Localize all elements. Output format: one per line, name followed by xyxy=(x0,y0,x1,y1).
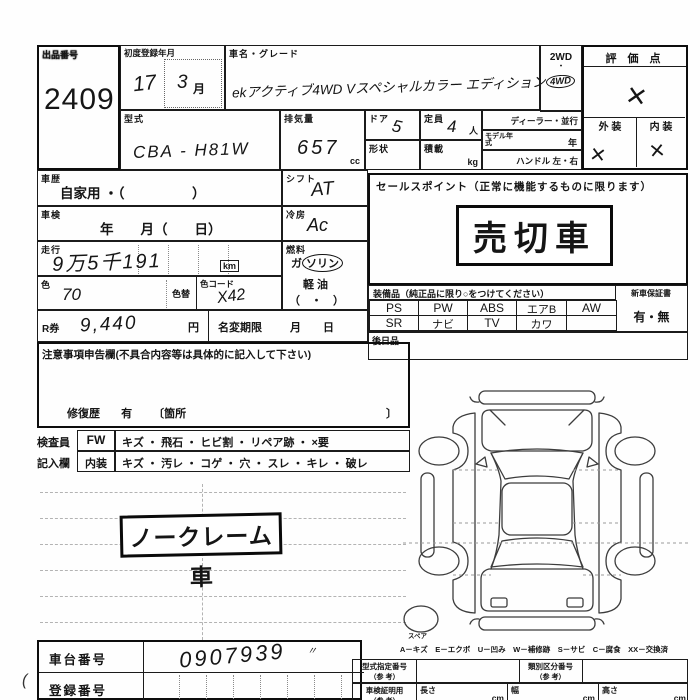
height-unit: cm xyxy=(674,693,686,700)
class-number-label: 類別区分番号 xyxy=(519,661,582,672)
warranty-value: 有・無 xyxy=(616,300,686,331)
exterior-mark-cell: × xyxy=(584,135,637,167)
cert-label: 車検証明用 xyxy=(353,685,416,696)
capacity-unit: 人 xyxy=(469,124,478,137)
shift-cell: シフト AT xyxy=(282,170,368,206)
length-unit: cm xyxy=(492,693,504,700)
color-row: 色 70 色替 色コード X42 xyxy=(37,276,282,310)
no-claim-stamp: ノークレーム車 xyxy=(120,512,283,557)
color-label: 色 xyxy=(41,278,51,291)
shaken-value: 年 月（ 日） xyxy=(100,218,222,238)
history-row: 車歴 自家用 ・（ ） xyxy=(37,170,282,206)
notes-header: 注意事項申告欄(不具合内容等は具体的に記入して下さい) xyxy=(42,347,311,362)
history-value: 自家用 ・（ ） xyxy=(60,182,206,202)
shaken-label: 車検 xyxy=(41,208,61,221)
model-year-label: モデル年式 xyxy=(485,133,515,147)
height-label: 高さ xyxy=(602,685,618,696)
mileage-row: 走行 9万5千191 km xyxy=(37,241,282,276)
damage-legend: A－キズ E－エクボ U－凹み W－補修跡 S－サビ C－腐食 XX－交換済 xyxy=(378,644,690,655)
class-number-ref: （参 考） xyxy=(519,672,582,682)
score-box: 評 価 点 × 外 装 内 装 × × xyxy=(582,45,688,170)
equip-navi: ナビ xyxy=(418,315,468,331)
drive-4wd-circled: 4WD xyxy=(546,74,576,89)
sales-point-header: セールスポイント（正常に機能するものに限ります） xyxy=(376,179,652,194)
equipment-header: 装備品（純正品に限り○をつけてください） xyxy=(369,286,616,300)
inspector-label-2: 記入欄 xyxy=(37,455,70,471)
chassis-table: 車台番号 0907939 〃 登録番号 xyxy=(37,640,362,700)
exterior-header: 外 装 xyxy=(584,117,637,135)
fw-cell: FW xyxy=(77,430,115,451)
chassis-label: 車台番号 xyxy=(39,642,144,672)
equip-pw: PW xyxy=(418,300,468,316)
interior-header: 内 装 xyxy=(637,117,685,135)
ac-value: Ac xyxy=(307,215,328,236)
chassis-ditto-mark: 〃 xyxy=(307,642,317,657)
dimensions-row: 車検証明用 （参 考） 長さ cm 幅 cm 高さ cm xyxy=(352,683,688,700)
width-unit: cm xyxy=(583,693,595,700)
type-designation-label: 型式指定番号 xyxy=(353,661,416,672)
lot-label: 出品番号 xyxy=(42,48,78,61)
equip-sr: SR xyxy=(369,315,419,331)
class-number-cell: 類別区分番号 （参 考） xyxy=(519,660,583,682)
equip-kawa: カワ xyxy=(516,315,567,331)
score-mark: × xyxy=(623,78,648,115)
equip-blank xyxy=(566,315,617,331)
type-designation-row: 型式指定番号 （参 考） 類別区分番号 （参 考） xyxy=(352,659,688,683)
car-damage-diagram xyxy=(395,385,695,643)
repair-value: 有 xyxy=(121,408,132,420)
warranty-label: 新車保証書 xyxy=(616,286,686,300)
model-value: CBA - H81W xyxy=(133,139,250,163)
later-items-box: 後日品 xyxy=(368,332,688,360)
capacity-value: 4 xyxy=(447,117,456,137)
notes-box: 注意事項申告欄(不具合内容等は具体的に記入して下さい) 修復歴 有 〔箇所 〕 xyxy=(37,342,410,428)
lot-number-value: 2409 xyxy=(44,83,115,117)
cert-cell: 車検証明用 （参 考） xyxy=(353,684,417,700)
shift-value: AT xyxy=(310,178,335,202)
displacement-value: 657 xyxy=(297,137,339,160)
doors-value: 5 xyxy=(390,116,403,138)
spare-label: スペア xyxy=(408,630,427,640)
load-label: 積載 xyxy=(424,142,444,155)
first-registration-label: 初度登録年月 xyxy=(124,47,175,59)
history-label: 車歴 xyxy=(41,172,61,185)
sold-out-stamp: 売切車 xyxy=(456,205,613,266)
first-registration-year: 17 xyxy=(132,71,158,97)
registration-value-area xyxy=(144,672,364,700)
interior-cell: 内装 xyxy=(77,451,115,472)
equip-tv: TV xyxy=(467,315,517,331)
car-name-box: 車名・グレード ekアクティブ4WD Vスペシャルカラー エディション xyxy=(225,45,540,110)
width-label: 幅 xyxy=(511,685,519,696)
mileage-unit: km xyxy=(220,260,239,272)
shaken-row: 車検 年 月（ 日） xyxy=(37,206,282,241)
repair-open: 〔箇所 xyxy=(153,408,186,420)
registration-label: 登録番号 xyxy=(39,672,144,700)
chassis-value: 0907939 xyxy=(178,638,287,673)
mileage-value: 9万5千191 xyxy=(52,244,163,277)
fuel-paren: （ ・ ） xyxy=(289,292,344,308)
length-cell: 長さ cm xyxy=(417,684,508,700)
first-registration-box: 初度登録年月 17 3 月 xyxy=(120,45,225,110)
capacity-label: 定員 xyxy=(424,112,444,125)
equip-ps: PS xyxy=(369,300,419,316)
inspector-label-1: 検査員 xyxy=(37,434,70,450)
drive-dot: ・ xyxy=(541,63,581,69)
repair-label: 修復歴 xyxy=(67,408,100,420)
fw-items: キズ ・ 飛石 ・ ヒビ割 ・ リペア跡 ・ ×要 xyxy=(115,430,410,451)
interior-mark: × xyxy=(648,136,666,163)
drive-type-box: 2WD ・ 4WD xyxy=(540,45,582,112)
model-label: 型式 xyxy=(124,112,144,125)
shape-cell: 形状 xyxy=(365,140,420,170)
lot-number-box: 出品番号 2409 xyxy=(37,45,120,170)
inspector-row-interior: 記入欄 内装 キズ ・ 汚レ ・ コゲ ・ 穴 ・ スレ ・ キレ ・ 破レ xyxy=(37,451,410,472)
height-cell: 高さ cm xyxy=(599,684,689,700)
fuel-gas-line: ガソリン xyxy=(291,254,343,272)
equipment-box: 装備品（純正品に限り○をつけてください） 新車保証書 PS PW ABS エアB… xyxy=(368,285,688,332)
car-name-value: ekアクティブ4WD Vスペシャルカラー エディション xyxy=(232,71,546,102)
color-code-value: X42 xyxy=(216,286,247,308)
doors-cell: ドア 5 xyxy=(365,110,420,140)
equip-aw: AW xyxy=(566,300,617,316)
length-label: 長さ xyxy=(420,685,436,696)
car-name-label: 車名・グレード xyxy=(229,47,299,60)
ac-label: 冷房 xyxy=(286,208,306,221)
color-value: 70 xyxy=(62,285,81,305)
color-change-label: 色替 xyxy=(172,287,190,300)
cert-ref: （参 考） xyxy=(353,696,416,700)
name-change-value: 月 日 xyxy=(290,319,334,335)
model-box: 型式 CBA - H81W xyxy=(120,110,280,170)
color-code-cell: 色コード X42 xyxy=(196,277,283,309)
first-registration-month-cell: 3 月 xyxy=(164,59,222,108)
rticket-label: R券 xyxy=(42,320,59,335)
type-designation-ref: （参 考） xyxy=(353,672,416,682)
name-change-label: 名変期限 xyxy=(218,319,262,335)
displacement-label: 排気量 xyxy=(284,112,314,125)
fuel-cell: 燃料 ガソリン 軽 油 （ ・ ） xyxy=(282,241,368,310)
handwritten-tick: ( xyxy=(22,672,27,690)
ac-cell: 冷房 Ac xyxy=(282,206,368,241)
interior-items: キズ ・ 汚レ ・ コゲ ・ 穴 ・ スレ ・ キレ ・ 破レ xyxy=(115,451,410,472)
displacement-box: 排気量 657 cc xyxy=(280,110,365,170)
width-cell: 幅 cm xyxy=(508,684,599,700)
equip-abs: ABS xyxy=(467,300,517,316)
month-unit: 月 xyxy=(193,80,205,97)
repair-history-line: 修復歴 有 〔箇所 〕 xyxy=(67,405,397,421)
rticket-unit: 円 xyxy=(188,319,199,335)
handle-cell: ハンドル 左・右 xyxy=(482,150,582,170)
rticket-row: R券 9,440 円 名変期限 月 日 xyxy=(37,310,368,342)
type-designation-cell: 型式指定番号 （参 考） xyxy=(353,660,417,682)
sales-point-box: セールスポイント（正常に機能するものに限ります） 売切車 xyxy=(368,173,688,285)
doors-label: ドア xyxy=(369,112,389,125)
displacement-unit: cc xyxy=(350,156,360,166)
first-registration-month: 3 xyxy=(177,72,188,94)
load-unit: kg xyxy=(467,157,478,167)
interior-mark-cell: × xyxy=(637,135,685,167)
load-cell: 積載 kg xyxy=(420,140,482,170)
model-year-unit: 年 xyxy=(568,136,577,149)
inspector-row-fw: 検査員 FW キズ ・ 飛石 ・ ヒビ割 ・ リペア跡 ・ ×要 xyxy=(37,430,410,451)
model-year-cell: モデル年式 年 xyxy=(482,130,582,150)
dealer-cell: ディーラー・並行 xyxy=(482,110,582,130)
fuel-gas-prefix: ガ xyxy=(291,258,302,270)
exterior-mark: × xyxy=(588,140,607,168)
rticket-value: 9,440 xyxy=(79,313,138,338)
capacity-cell: 定員 4 人 xyxy=(420,110,482,140)
score-header: 評 価 点 xyxy=(584,47,686,67)
shape-label: 形状 xyxy=(369,142,389,155)
fuel-diesel: 軽 油 xyxy=(303,276,328,292)
equip-airbag: エアB xyxy=(516,300,567,316)
fuel-gas-circled: ソリン xyxy=(302,254,343,272)
auction-sheet: 出品番号 2409 初度登録年月 17 3 月 車名・グレード ekアクティブ4… xyxy=(0,0,700,700)
